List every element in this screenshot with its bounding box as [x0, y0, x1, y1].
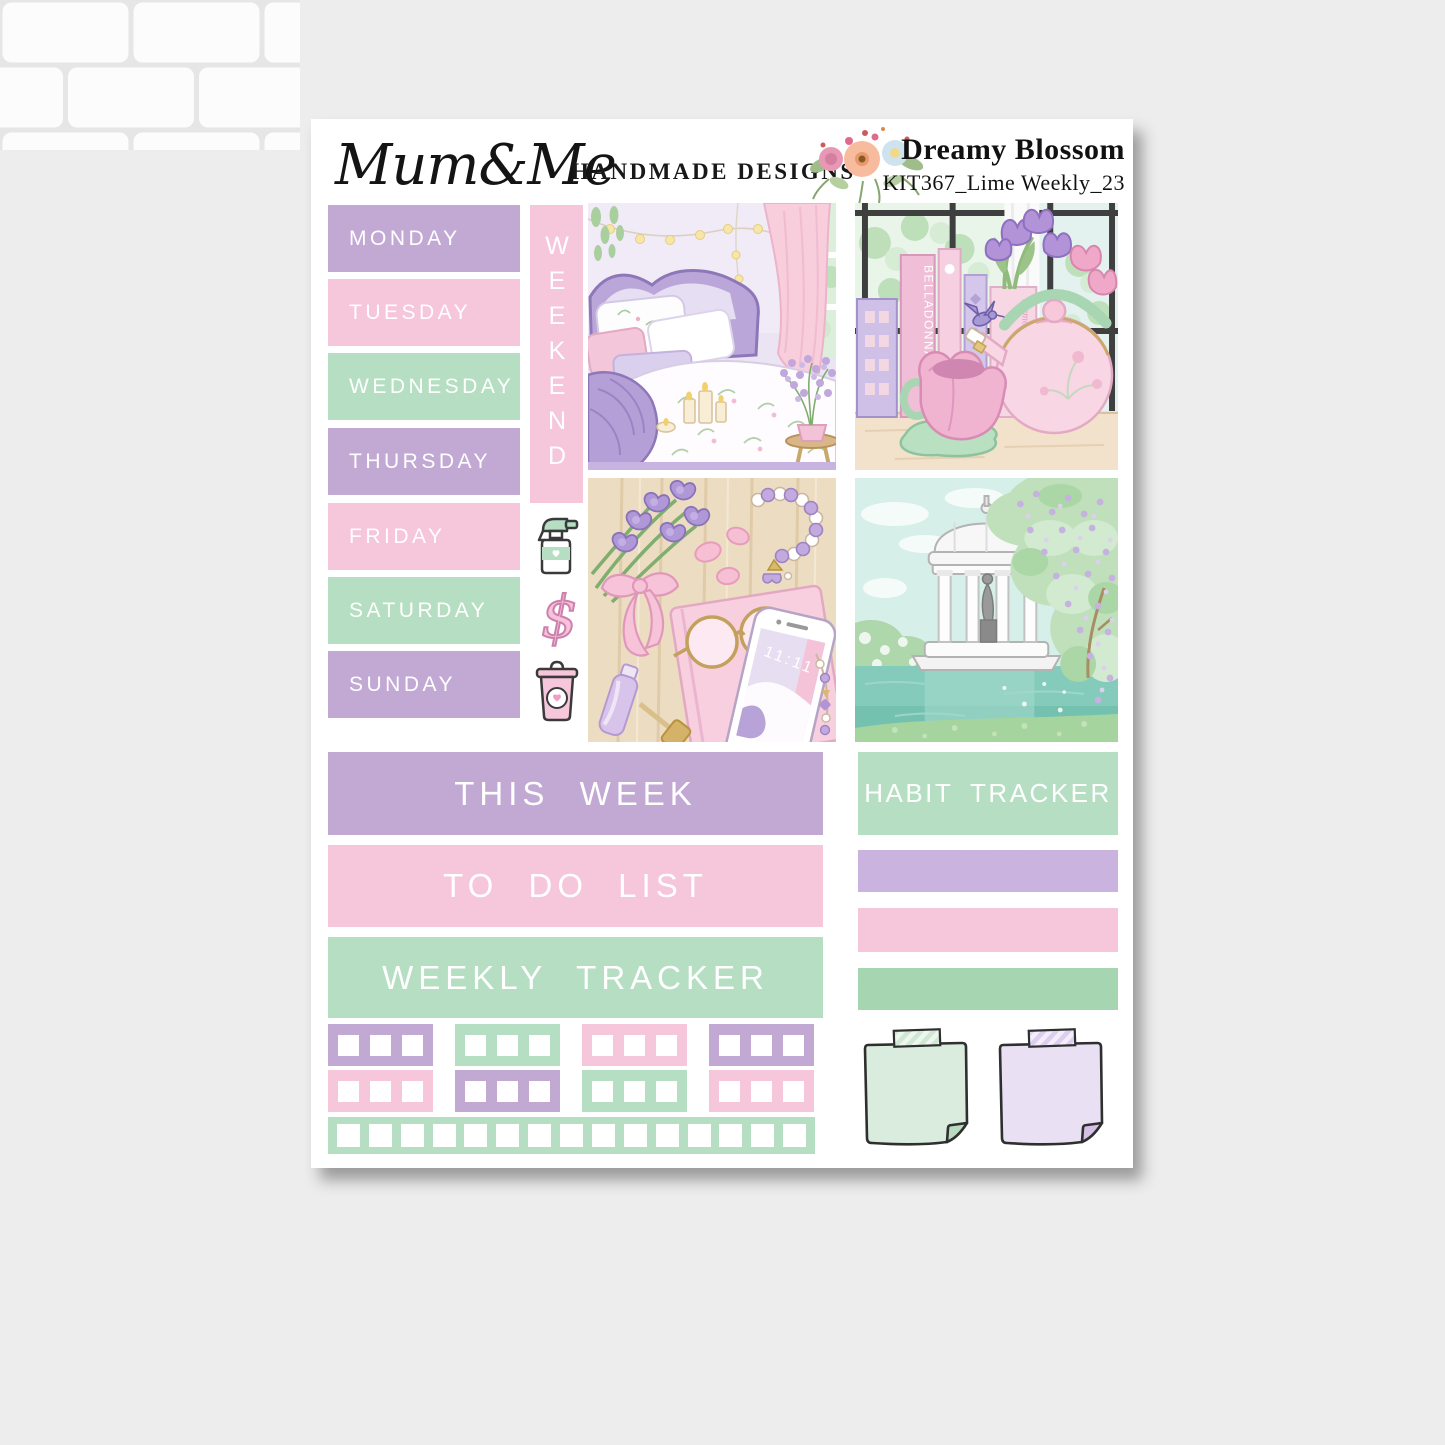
kit-info: Dreamy Blossom KIT367_Lime Weekly_23: [883, 133, 1125, 196]
weekend-banner: WEEKEND: [530, 205, 583, 503]
checkbox: [496, 1124, 519, 1147]
checkbox: [560, 1124, 583, 1147]
checkbox-block: [709, 1024, 814, 1066]
checkbox: [624, 1124, 647, 1147]
checkbox: [528, 1124, 551, 1147]
checkbox: [656, 1035, 677, 1056]
checkbox: [783, 1124, 806, 1147]
kit-code: KIT367_Lime Weekly_23: [883, 170, 1125, 196]
checkbox: [338, 1035, 359, 1056]
brush-stroke-green: [858, 968, 1118, 1010]
day-sticker-sunday: SUNDAY: [328, 651, 520, 718]
checkbox: [338, 1081, 359, 1102]
checkbox: [433, 1124, 456, 1147]
checkbox: [370, 1081, 391, 1102]
checkbox: [370, 1035, 391, 1056]
sticker-sheet: Mum&Me HANDMADE DESIGNS Dreamy Blossom K…: [311, 119, 1133, 1168]
svg-text:BELLADONNA: BELLADONNA: [922, 265, 936, 361]
checkbox: [497, 1035, 518, 1056]
checkbox: [529, 1035, 550, 1056]
checkbox: [719, 1081, 740, 1102]
tile-background: [0, 0, 300, 150]
checkbox: [592, 1124, 615, 1147]
checkbox: [719, 1035, 740, 1056]
checkbox-strip: [328, 1117, 815, 1154]
checkbox: [751, 1124, 774, 1147]
header-habit-tracker: HABIT TRACKER: [858, 752, 1118, 835]
illustration-bedroom: [588, 203, 836, 470]
checkbox-block: [582, 1070, 687, 1112]
day-sticker-tuesday: TUESDAY: [328, 279, 520, 346]
sticky-note-lilac: [993, 1028, 1109, 1152]
checkbox-block: [328, 1070, 433, 1112]
illustration-flatlay: 11:11: [588, 478, 836, 742]
header-to-do-list: TO DO LIST: [328, 845, 823, 927]
kit-name: Dreamy Blossom: [883, 133, 1125, 167]
checkbox: [402, 1035, 423, 1056]
day-sticker-friday: FRIDAY: [328, 503, 520, 570]
checkbox: [783, 1035, 804, 1056]
day-sticker-thursday: THURSDAY: [328, 428, 520, 495]
checkbox: [783, 1081, 804, 1102]
checkbox: [401, 1124, 424, 1147]
checkbox: [337, 1124, 360, 1147]
checkbox: [592, 1035, 613, 1056]
trash-can-icon: [533, 659, 581, 723]
checkbox: [464, 1124, 487, 1147]
checkbox: [688, 1124, 711, 1147]
checkbox: [369, 1124, 392, 1147]
checkbox: [465, 1081, 486, 1102]
checkbox: [656, 1081, 677, 1102]
day-sticker-monday: MONDAY: [328, 205, 520, 272]
checkbox: [529, 1081, 550, 1102]
checkbox: [624, 1081, 645, 1102]
checkbox: [402, 1081, 423, 1102]
brush-stroke-pink: [858, 908, 1118, 952]
header-weekly-tracker: WEEKLY TRACKER: [328, 937, 823, 1018]
checkbox: [751, 1035, 772, 1056]
checkbox: [497, 1081, 518, 1102]
checkbox: [465, 1035, 486, 1056]
illustration-tea-books: BELLADONNA Memories of: [855, 203, 1118, 470]
svg-text:$: $: [541, 585, 578, 651]
checkbox-block: [455, 1024, 560, 1066]
checkbox: [719, 1124, 742, 1147]
illustration-gazebo: [855, 478, 1118, 742]
header-this-week: THIS WEEK: [328, 752, 823, 835]
checkbox-block: [328, 1024, 433, 1066]
checkbox: [592, 1081, 613, 1102]
checkbox-block: [455, 1070, 560, 1112]
spray-bottle-icon: [533, 514, 581, 576]
checkbox: [624, 1035, 645, 1056]
checkbox: [656, 1124, 679, 1147]
checkbox-block: [709, 1070, 814, 1112]
checkbox: [751, 1081, 772, 1102]
dollar-sign-icon: $: [537, 585, 579, 651]
day-sticker-wednesday: WEDNESDAY: [328, 353, 520, 420]
sticky-note-green: [858, 1028, 974, 1152]
checkbox-block: [582, 1024, 687, 1066]
day-sticker-saturday: SATURDAY: [328, 577, 520, 644]
brush-stroke-purple: [858, 850, 1118, 892]
